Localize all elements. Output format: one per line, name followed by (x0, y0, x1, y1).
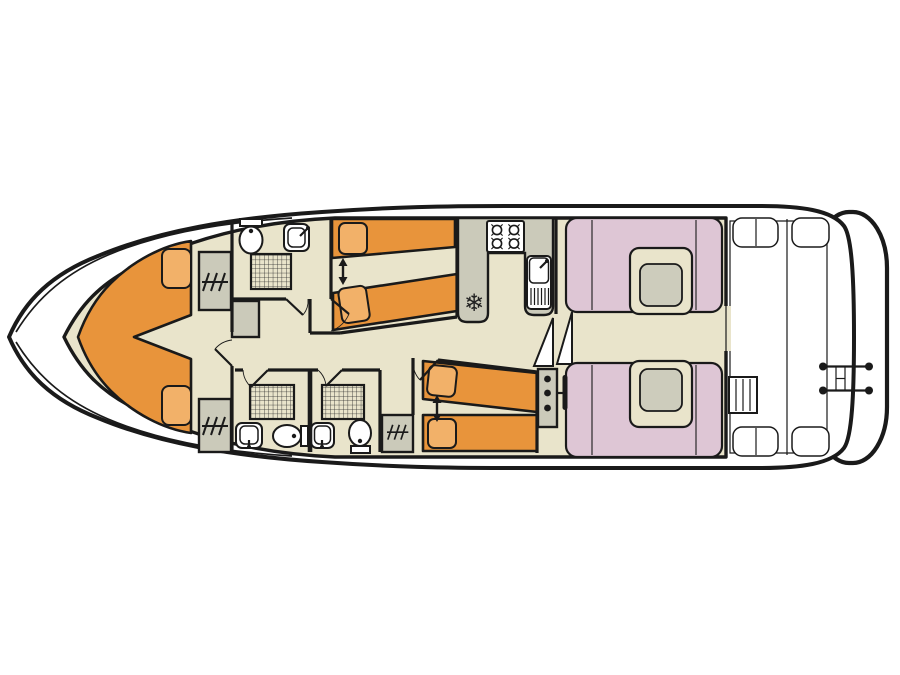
dinette-forward (566, 218, 722, 314)
floor-plan-canvas: ❄ (0, 0, 900, 675)
table-inset (640, 264, 682, 306)
pillow (339, 223, 367, 254)
toilet (273, 425, 308, 447)
shower (250, 385, 294, 419)
wardrobe (382, 415, 413, 452)
toilet (240, 219, 263, 254)
shower (251, 254, 291, 289)
washbasin (311, 423, 334, 449)
instrument-dial (544, 390, 551, 397)
pillow (162, 249, 191, 288)
washbasin (236, 423, 262, 449)
toilet (349, 420, 371, 453)
pillow (427, 365, 458, 398)
pillow (428, 419, 456, 448)
galley-sink (527, 256, 551, 309)
boat-floor-plan: ❄ (0, 0, 900, 675)
sliding-door-to-deck (722, 306, 731, 351)
deck-corner-seat (792, 427, 829, 456)
shower (322, 385, 364, 419)
fridge-icon: ❄ (464, 289, 484, 317)
dinette-aft (566, 361, 722, 457)
pillow (162, 386, 191, 425)
pillow (338, 285, 371, 324)
steering-wheel (563, 375, 568, 410)
cabinet (232, 301, 259, 337)
washbasin (284, 224, 310, 251)
instrument-dial (544, 376, 551, 383)
hob (487, 221, 524, 252)
table-inset (640, 369, 682, 411)
instrument-dial (544, 405, 551, 412)
deck-corner-seat (792, 218, 829, 247)
deck-steps (729, 377, 757, 413)
